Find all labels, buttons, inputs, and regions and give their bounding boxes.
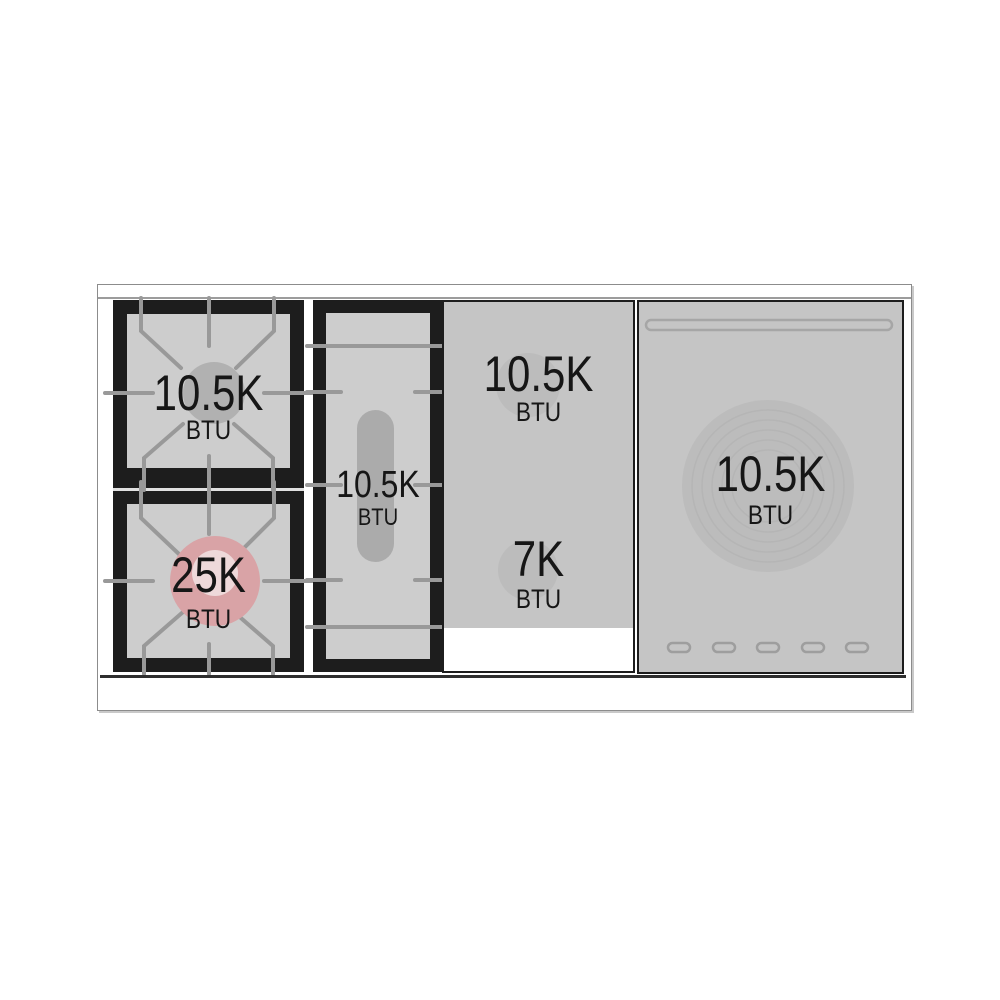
- center-panel-front-area: [442, 628, 635, 673]
- rangetop-diagram: 10.5K BTU 25K BTU 10.5K BTU 10.5K BTU 7K…: [0, 0, 1000, 1000]
- center-panel-bottom-burner-mark: [498, 540, 558, 600]
- cooktop-front-edge: [100, 675, 906, 678]
- griddle-graphic: [313, 300, 443, 672]
- burner-grate-graphic: [113, 300, 304, 672]
- griddle-section: [313, 300, 443, 672]
- griddle-plate: [357, 410, 394, 562]
- center-panel-top-burner-mark: [496, 353, 560, 417]
- center-panel: [442, 300, 635, 673]
- center-panel-surface: [442, 300, 635, 630]
- back-ledge-line: [98, 297, 911, 299]
- right-panel-graphic: [639, 302, 902, 672]
- range-unit-outline: 10.5K BTU 25K BTU 10.5K BTU 10.5K BTU 7K…: [97, 284, 912, 711]
- round-burner-zone: [682, 400, 854, 572]
- burner-cap-top-left: [183, 362, 245, 424]
- burner-cap-bottom-left-inner: [192, 550, 238, 596]
- back-trim-bar: [646, 320, 892, 330]
- control-knob-marks: [668, 643, 868, 652]
- right-panel: [637, 300, 904, 674]
- gas-burner-block: [113, 300, 304, 672]
